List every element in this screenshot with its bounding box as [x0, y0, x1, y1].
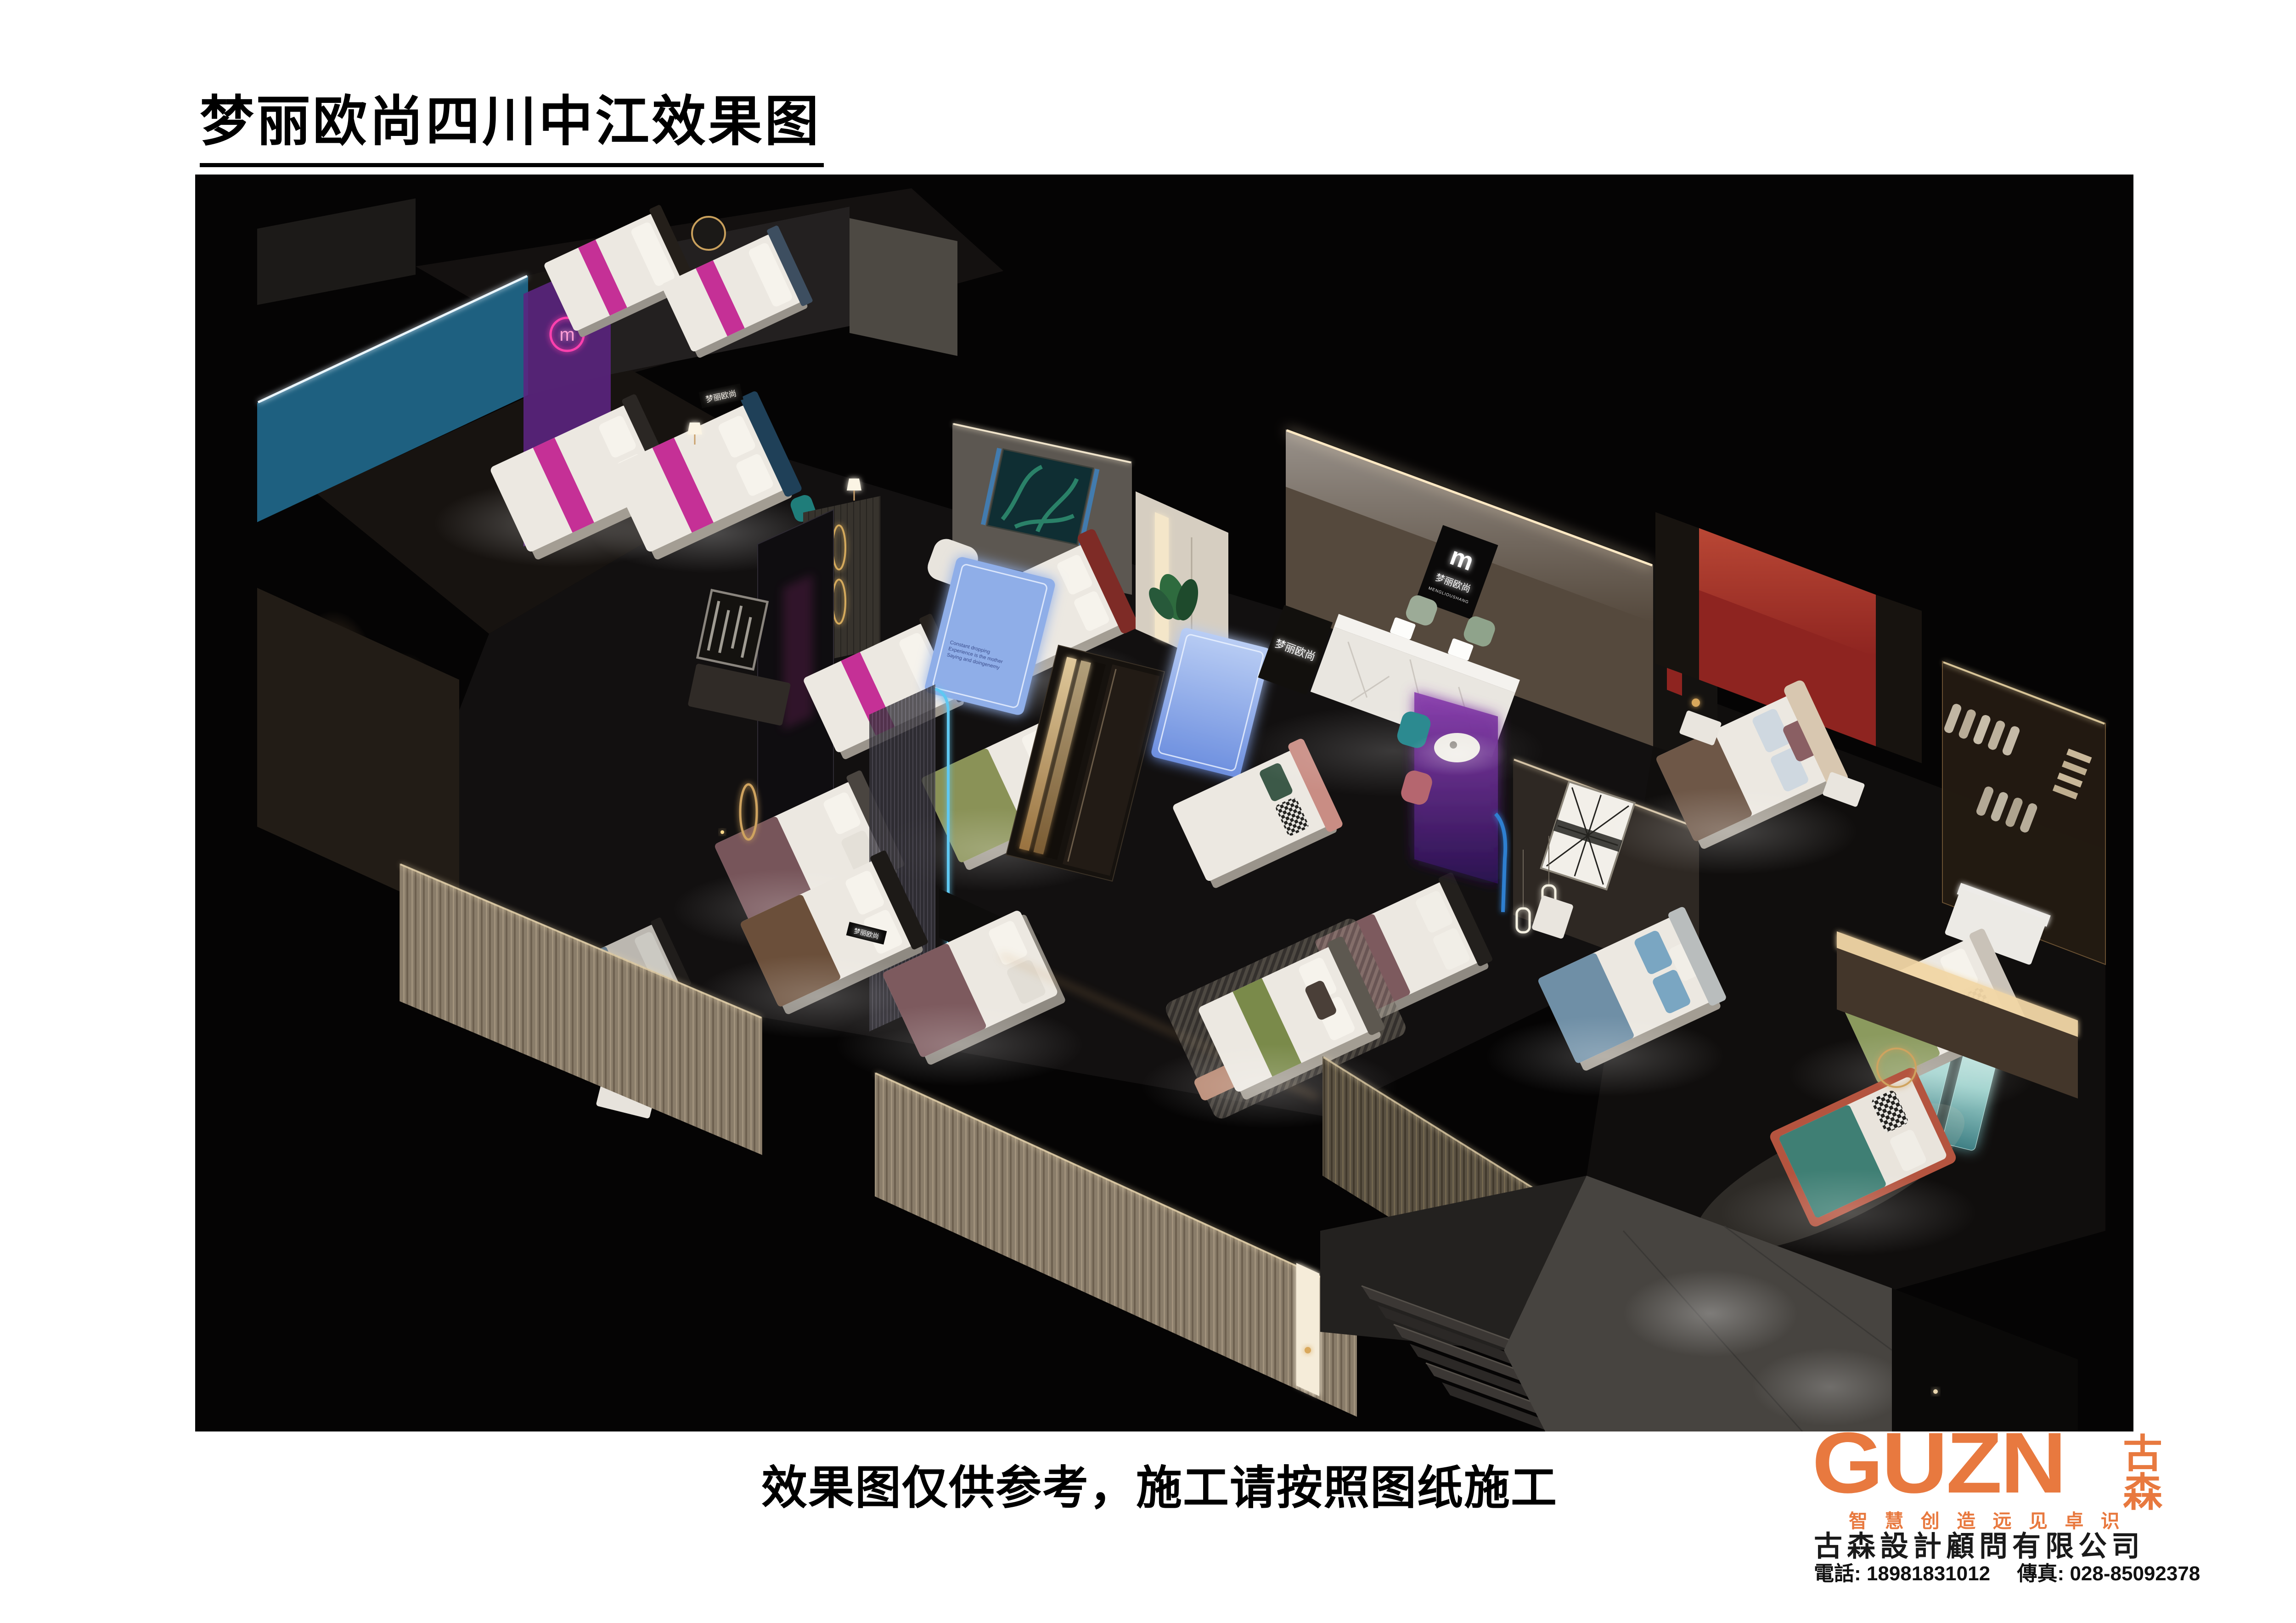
wall-light: [850, 218, 957, 356]
guzn-wordmark: GUZN: [1812, 1420, 2065, 1506]
guzn-cn-mark: 古森: [2122, 1435, 2164, 1512]
round-gold-mirror: [692, 217, 725, 250]
walk-in-closet: [1942, 661, 2105, 966]
entrance-light-pool: [1752, 1348, 1908, 1426]
showroom-scene: m: [195, 175, 2133, 1431]
contact-line: 電話: 18981831012 傳真: 028-85092378: [1814, 1557, 2200, 1586]
wall-dark: [1655, 512, 1699, 680]
gold-decor: [1305, 1347, 1311, 1353]
fax-label: 傳真:: [2017, 1562, 2065, 1585]
brand-mark-glass: m: [559, 325, 574, 345]
presentation-sheet: 梦丽欧尚四川中江效果图: [0, 0, 2296, 1623]
wood-wall-left: [257, 588, 459, 919]
phone-number: 18981831012: [1867, 1562, 1990, 1585]
phone-label: 電話:: [1814, 1562, 1861, 1585]
mirror-reflection: [783, 574, 813, 730]
downlight: [720, 830, 724, 834]
lit-cubicle-slit: [1296, 1263, 1319, 1396]
showroom-render: m: [195, 175, 2133, 1431]
dark-landing: [1892, 1288, 2078, 1431]
light-pool: [1600, 788, 1857, 875]
lamp-shade: [847, 479, 861, 490]
light-pool: [836, 1003, 1084, 1086]
step-light: [1933, 1389, 1938, 1394]
wall-dark: [1876, 595, 1922, 763]
page-title: 梦丽欧尚四川中江效果图: [200, 77, 824, 167]
disclaimer-text: 效果图仅供参考，施工请按照图纸施工: [735, 1450, 1584, 1517]
gold-decor: [1692, 699, 1700, 707]
ceiling-slab: [257, 198, 416, 305]
light-pool: [1407, 732, 1508, 776]
fax-number: 028-85092378: [2070, 1562, 2200, 1585]
entrance-light-pool: [1623, 1270, 1798, 1357]
light-pool: [1486, 1016, 1724, 1097]
brand-sign-grey-wall: 梦丽欧尚: [698, 383, 743, 408]
lamp-shade: [687, 423, 702, 434]
